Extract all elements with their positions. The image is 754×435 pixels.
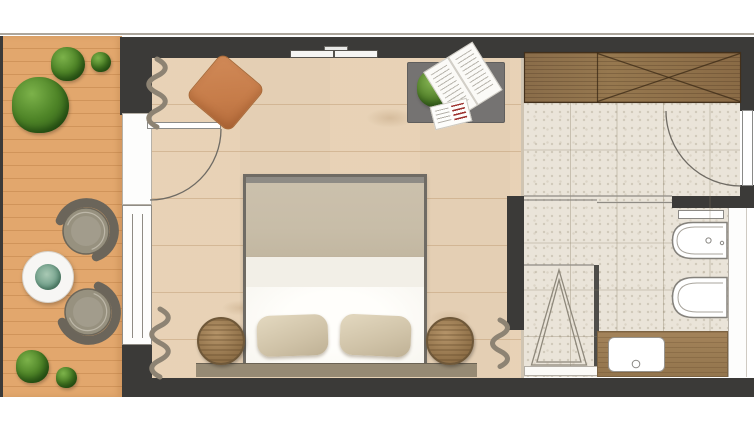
wall-right-upper xyxy=(740,37,754,111)
wall-tv xyxy=(290,50,378,58)
wall-left-upper xyxy=(120,37,152,115)
potted-plant-medium xyxy=(51,47,85,81)
pillow-left xyxy=(256,314,328,357)
potted-plant-small xyxy=(91,52,111,72)
wall-entry-stub xyxy=(672,196,754,208)
nightstand-right xyxy=(426,317,474,365)
potted-plant-bottom-small xyxy=(56,367,77,388)
wardrobe xyxy=(524,52,741,103)
plumbing-niche xyxy=(728,208,747,377)
nightstand-left xyxy=(197,317,245,365)
double-bed xyxy=(243,174,427,372)
shower-threshold xyxy=(524,366,599,376)
bed-sheet-fold xyxy=(246,257,424,287)
booklet-red-text xyxy=(451,103,468,122)
entrance-door-leaf xyxy=(742,110,753,186)
floor-plan xyxy=(0,0,754,435)
booklet-text xyxy=(435,107,452,124)
terrace-edge-wall xyxy=(0,36,3,397)
bedroom-bathroom-divider-wall xyxy=(507,196,524,330)
succulent-centerpiece xyxy=(35,264,61,290)
terrace-window xyxy=(122,205,152,345)
terrace-door-leaf xyxy=(147,122,221,129)
headboard-panel xyxy=(196,363,477,377)
potted-plant-bottom-large xyxy=(16,350,49,383)
roof-edge-line xyxy=(0,33,754,35)
potted-plant-large xyxy=(12,77,69,133)
washbasin xyxy=(608,337,665,372)
bed-duvet xyxy=(246,183,424,257)
wall-bottom xyxy=(122,378,754,397)
bathroom-shelf xyxy=(678,210,724,219)
pillow-right xyxy=(339,313,412,357)
